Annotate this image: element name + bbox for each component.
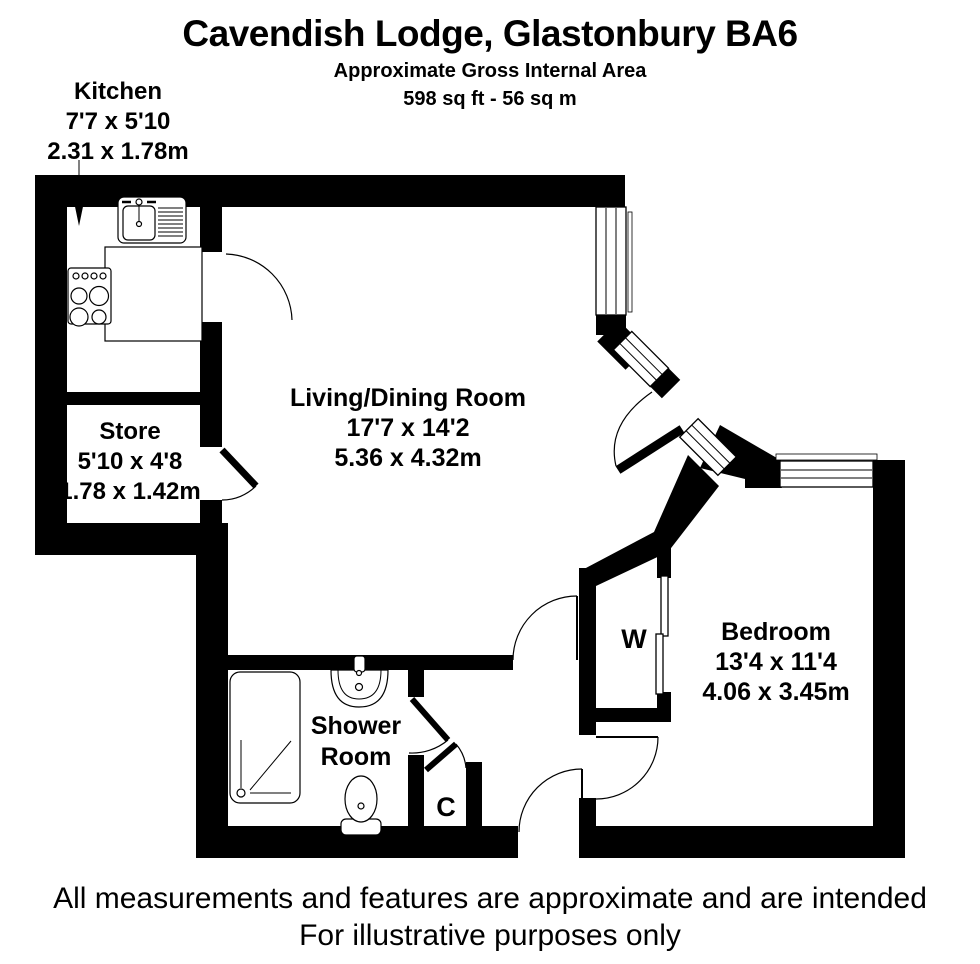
kitchen-counter	[105, 247, 202, 341]
page-title: Cavendish Lodge, Glastonbury BA6	[182, 13, 797, 55]
kitchen-hob	[68, 268, 111, 326]
wall-kitchen-store-divider	[67, 392, 222, 405]
shower-door-leaf	[412, 699, 448, 740]
living-dining-name: Living/Dining Room	[290, 383, 526, 413]
living-dining-room-label: Living/Dining Room 17'7 x 14'2 5.36 x 4.…	[290, 383, 526, 473]
store-name: Store	[59, 417, 200, 447]
living-room-window	[596, 207, 632, 315]
gross-internal-area: 598 sq ft - 56 sq m	[403, 88, 576, 111]
bay-door-leaf	[618, 429, 682, 470]
wall-kitchen-right-a	[200, 175, 222, 252]
store-room-label: Store 5'10 x 4'8 1.78 x 1.42m	[59, 417, 200, 507]
wall-right	[873, 460, 905, 858]
cupboard-label: C	[436, 792, 456, 823]
store-metric-dims: 1.78 x 1.42m	[59, 477, 200, 507]
floorplan-page: Cavendish Lodge, Glastonbury BA6 Approxi…	[0, 0, 980, 964]
cupboard-door-arc	[456, 744, 466, 768]
living-dining-metric-dims: 5.36 x 4.32m	[290, 443, 526, 473]
cupboard-door-leaf	[426, 744, 456, 770]
bedroom-door-arc	[596, 737, 658, 799]
kitchen-room-label: Kitchen 7'7 x 5'10 2.31 x 1.78m	[47, 77, 188, 167]
shower-door-arc	[409, 740, 448, 753]
store-door-arc	[222, 486, 256, 500]
toilet	[341, 776, 381, 835]
wall-shower-right-a	[408, 670, 424, 697]
wall-bottom-right	[579, 826, 905, 858]
wall-living-bottom	[228, 655, 513, 670]
store-door-leaf	[222, 450, 256, 486]
shower-tray	[230, 672, 300, 803]
shower-room-label: Shower Room	[311, 711, 401, 773]
living-dining-imperial-dims: 17'7 x 14'2	[290, 413, 526, 443]
living-hall-door-arc	[513, 596, 577, 660]
wall-diagonal-living-bedroom	[584, 455, 719, 586]
kitchen-metric-dims: 2.31 x 1.78m	[47, 137, 188, 167]
wall-lower-left	[196, 523, 228, 858]
wardrobe-sliding-doors	[656, 576, 668, 694]
kitchen-door-arc	[226, 254, 292, 320]
shower-room-name-line2: Room	[311, 742, 401, 773]
store-imperial-dims: 5'10 x 4'8	[59, 447, 200, 477]
wall-cupboard-right	[466, 762, 482, 826]
entry-door-arc	[519, 769, 582, 832]
bedroom-room-label: Bedroom 13'4 x 11'4 4.06 x 3.45m	[702, 617, 849, 707]
disclaimer-line2: For illustrative purposes only	[299, 919, 681, 953]
shower-room-name-line1: Shower	[311, 711, 401, 742]
kitchen-sink	[118, 197, 186, 243]
wall-wardrobe-right-top	[657, 548, 671, 578]
kitchen-imperial-dims: 7'7 x 5'10	[47, 107, 188, 137]
wall-kitchen-right-b	[200, 322, 222, 395]
wardrobe-label: W	[621, 624, 646, 655]
wall-shower-right-b	[408, 755, 424, 826]
bedroom-name: Bedroom	[702, 617, 849, 647]
bedroom-window	[776, 454, 877, 487]
wall-store-right-b	[200, 500, 222, 523]
kitchen-name: Kitchen	[47, 77, 188, 107]
disclaimer-line1: All measurements and features are approx…	[53, 882, 927, 916]
bedroom-metric-dims: 4.06 x 3.45m	[702, 677, 849, 707]
page-subtitle: Approximate Gross Internal Area	[334, 60, 647, 83]
bedroom-imperial-dims: 13'4 x 11'4	[702, 647, 849, 677]
wall-store-right-a	[200, 405, 222, 447]
wall-wardrobe-right-bottom	[657, 692, 671, 722]
